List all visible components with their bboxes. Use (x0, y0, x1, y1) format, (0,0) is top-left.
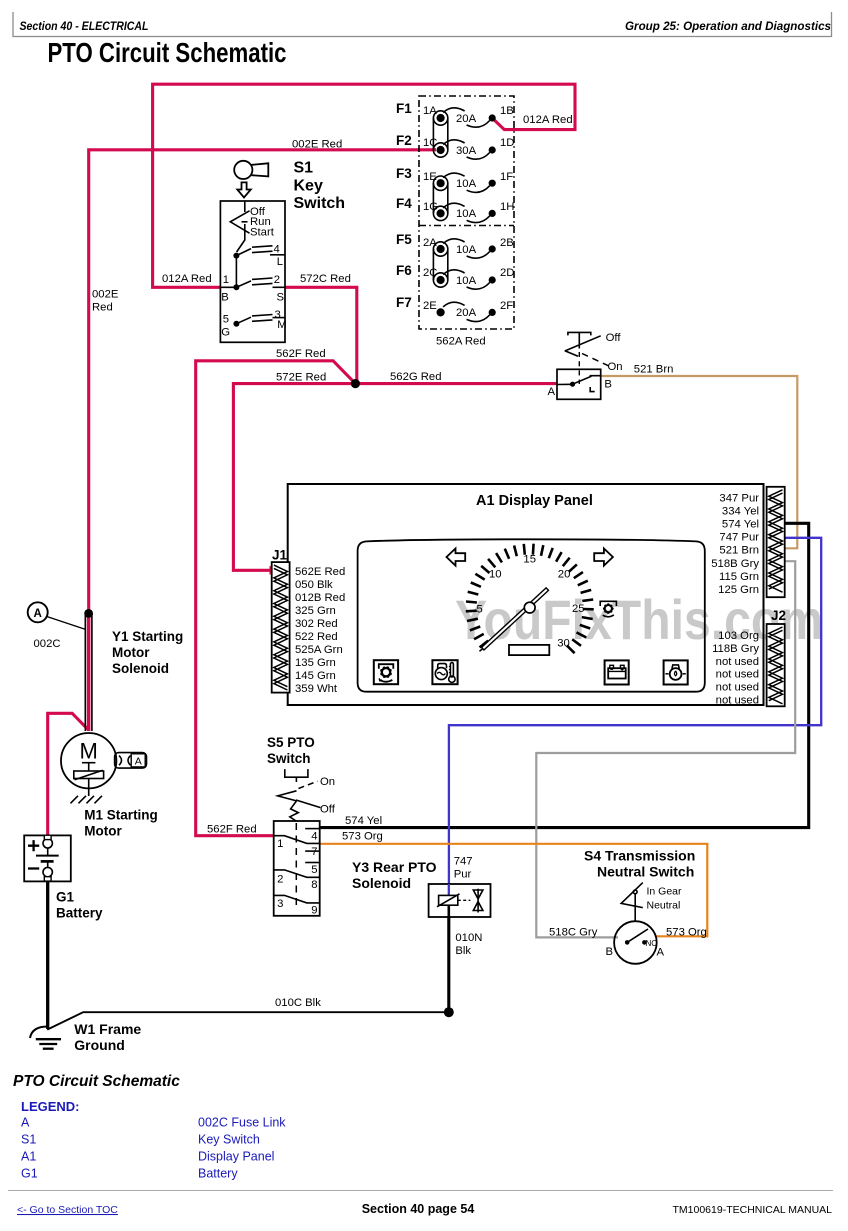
svg-text:1: 1 (223, 274, 229, 286)
svg-text:Off: Off (320, 804, 336, 816)
svg-text:1F: 1F (500, 171, 513, 183)
svg-text:Red: Red (92, 302, 113, 314)
svg-text:115 Grn: 115 Grn (719, 571, 759, 583)
svg-text:518B Gry: 518B Gry (711, 558, 759, 570)
svg-text:M: M (80, 739, 98, 764)
svg-text:747 Pur: 747 Pur (719, 532, 759, 544)
svg-text:Battery: Battery (56, 906, 103, 921)
svg-text:F2: F2 (396, 133, 412, 148)
svg-text:Battery: Battery (198, 1167, 238, 1181)
svg-text:Y3 Rear PTO: Y3 Rear PTO (352, 859, 437, 875)
svg-text:<- Go to Section TOC: <- Go to Section TOC (17, 1204, 118, 1216)
svg-text:562A Red: 562A Red (436, 336, 486, 348)
svg-text:522 Red: 522 Red (295, 631, 338, 643)
svg-text:NC: NC (646, 939, 658, 948)
svg-text:562E Red: 562E Red (295, 566, 345, 578)
svg-text:574 Yel: 574 Yel (345, 815, 382, 827)
svg-text:010C Blk: 010C Blk (275, 997, 321, 1009)
svg-text:PTO Circuit Schematic: PTO Circuit Schematic (48, 37, 287, 68)
svg-text:002C Fuse Link: 002C Fuse Link (198, 1116, 286, 1130)
svg-text:F6: F6 (396, 263, 412, 278)
svg-text:359 Wht: 359 Wht (295, 683, 338, 695)
svg-text:A: A (548, 386, 556, 398)
svg-text:S5 PTO: S5 PTO (267, 735, 315, 750)
svg-text:118B Gry: 118B Gry (712, 643, 759, 655)
svg-text:Solenoid: Solenoid (352, 875, 411, 891)
svg-text:J2: J2 (771, 608, 786, 623)
svg-text:B: B (606, 946, 614, 958)
svg-text:not used: not used (716, 669, 759, 681)
svg-text:Section 40 - ELECTRICAL: Section 40 - ELECTRICAL (20, 19, 149, 33)
svg-text:Off: Off (606, 332, 622, 344)
svg-text:A: A (34, 608, 42, 620)
svg-text:572E Red: 572E Red (276, 372, 326, 384)
svg-text:G1: G1 (21, 1167, 38, 1181)
svg-text:20A: 20A (456, 113, 477, 125)
svg-text:G: G (221, 326, 230, 338)
svg-text:10A: 10A (456, 178, 477, 190)
svg-text:521 Brn: 521 Brn (719, 545, 759, 557)
svg-text:Solenoid: Solenoid (112, 661, 169, 676)
svg-text:135 Grn: 135 Grn (295, 657, 336, 669)
svg-text:PTO Circuit Schematic: PTO Circuit Schematic (13, 1073, 180, 1090)
svg-text:Pur: Pur (454, 869, 472, 881)
svg-text:In Gear: In Gear (647, 886, 683, 898)
svg-text:B: B (604, 378, 612, 390)
svg-text:Switch: Switch (267, 751, 311, 766)
svg-text:S: S (277, 291, 285, 303)
svg-text:002E: 002E (92, 289, 119, 301)
svg-text:Switch: Switch (294, 195, 346, 212)
svg-text:M1 Starting: M1 Starting (84, 808, 158, 823)
svg-text:M: M (277, 319, 286, 331)
svg-text:4: 4 (274, 244, 280, 256)
svg-text:F5: F5 (396, 232, 412, 247)
svg-text:A: A (657, 947, 665, 959)
svg-text:2B: 2B (500, 237, 514, 249)
svg-text:10A: 10A (456, 244, 477, 256)
svg-text:1E: 1E (423, 171, 437, 183)
svg-text:1D: 1D (500, 137, 514, 149)
svg-text:5: 5 (477, 604, 483, 616)
svg-text:562G Red: 562G Red (390, 371, 442, 383)
svg-text:9: 9 (311, 905, 317, 917)
svg-text:002E Red: 002E Red (292, 139, 342, 151)
svg-text:L: L (277, 256, 283, 268)
svg-text:2C: 2C (423, 267, 437, 279)
svg-text:3: 3 (277, 898, 283, 910)
svg-text:10: 10 (489, 569, 502, 581)
svg-text:2F: 2F (500, 300, 513, 312)
svg-text:145 Grn: 145 Grn (295, 670, 336, 682)
svg-text:F4: F4 (396, 196, 412, 211)
svg-text:B: B (221, 291, 229, 303)
svg-text:573 Org: 573 Org (666, 927, 707, 939)
svg-text:562F Red: 562F Red (276, 348, 326, 360)
svg-text:012A Red: 012A Red (162, 273, 212, 285)
svg-text:20A: 20A (456, 307, 477, 319)
svg-text:1: 1 (277, 838, 283, 850)
svg-text:050 Blk: 050 Blk (295, 579, 333, 591)
svg-text:573 Org: 573 Org (342, 831, 383, 843)
svg-text:574 Yel: 574 Yel (722, 519, 759, 531)
svg-text:747: 747 (454, 856, 473, 868)
svg-text:Display Panel: Display Panel (198, 1150, 274, 1164)
svg-text:Neutral Switch: Neutral Switch (597, 864, 694, 880)
svg-text:15: 15 (523, 554, 536, 566)
svg-text:012B Red: 012B Red (295, 592, 345, 604)
svg-text:LEGEND:: LEGEND: (21, 1099, 80, 1114)
svg-text:Blk: Blk (455, 945, 471, 957)
svg-text:525A Grn: 525A Grn (295, 644, 343, 656)
svg-text:325 Grn: 325 Grn (295, 605, 336, 617)
svg-text:1C: 1C (423, 137, 437, 149)
svg-text:Motor: Motor (84, 824, 122, 839)
svg-text:Group 25: Operation and Diagno: Group 25: Operation and Diagnostics (625, 19, 831, 33)
svg-text:A: A (21, 1116, 30, 1130)
svg-text:On: On (608, 361, 623, 373)
svg-text:002C: 002C (34, 638, 61, 650)
svg-text:7: 7 (311, 846, 317, 858)
svg-text:4: 4 (311, 831, 317, 843)
svg-text:1B: 1B (500, 105, 514, 117)
svg-text:103 Org: 103 Org (718, 630, 759, 642)
svg-text:2A: 2A (423, 237, 437, 249)
svg-text:Section 40 page 54: Section 40 page 54 (362, 1202, 475, 1216)
svg-text:1H: 1H (500, 201, 514, 213)
svg-text:5: 5 (311, 864, 317, 876)
svg-text:F3: F3 (396, 166, 412, 181)
svg-text:10A: 10A (456, 208, 477, 220)
svg-text:F1: F1 (396, 101, 412, 116)
svg-text:Neutral: Neutral (647, 900, 681, 912)
svg-text:334 Yel: 334 Yel (722, 505, 759, 517)
svg-text:8: 8 (311, 879, 317, 891)
svg-text:Start: Start (250, 227, 275, 239)
svg-text:010N: 010N (455, 932, 482, 944)
svg-text:562F Red: 562F Red (207, 824, 257, 836)
svg-text:A1 Display Panel: A1 Display Panel (476, 493, 593, 509)
svg-text:F7: F7 (396, 295, 412, 310)
svg-text:not used: not used (716, 656, 759, 668)
svg-text:Key: Key (294, 178, 323, 195)
svg-text:347 Pur: 347 Pur (719, 492, 759, 504)
svg-text:A1: A1 (21, 1150, 36, 1164)
svg-text:A: A (135, 756, 142, 768)
svg-text:518C Gry: 518C Gry (549, 927, 598, 939)
svg-text:not used: not used (716, 695, 759, 707)
svg-text:2D: 2D (500, 267, 514, 279)
svg-text:J1: J1 (272, 548, 288, 563)
svg-text:2: 2 (274, 274, 280, 286)
svg-text:2E: 2E (423, 300, 437, 312)
svg-text:20: 20 (558, 569, 571, 581)
svg-text:Ground: Ground (74, 1037, 125, 1053)
svg-text:30A: 30A (456, 145, 477, 157)
svg-text:S1: S1 (294, 160, 314, 177)
svg-text:G1: G1 (56, 890, 75, 905)
svg-text:10A: 10A (456, 275, 477, 287)
svg-text:Key Switch: Key Switch (198, 1133, 260, 1147)
svg-text:On: On (320, 776, 335, 788)
svg-text:2: 2 (277, 874, 283, 886)
svg-text:Motor: Motor (112, 645, 150, 660)
svg-text:572C Red: 572C Red (300, 273, 351, 285)
svg-text:5: 5 (223, 314, 229, 326)
svg-text:521 Brn: 521 Brn (634, 364, 674, 376)
svg-text:30: 30 (557, 638, 570, 650)
svg-text:S1: S1 (21, 1133, 36, 1147)
svg-text:Y1 Starting: Y1 Starting (112, 629, 183, 644)
svg-text:S4 Transmission: S4 Transmission (584, 848, 695, 864)
svg-text:not used: not used (716, 682, 759, 694)
svg-text:TM100619-TECHNICAL MANUAL: TM100619-TECHNICAL MANUAL (673, 1204, 833, 1216)
svg-text:W1 Frame: W1 Frame (74, 1021, 141, 1037)
svg-text:25: 25 (572, 603, 585, 615)
svg-text:125 Grn: 125 Grn (718, 584, 759, 596)
svg-text:1A: 1A (423, 105, 437, 117)
svg-text:012A Red: 012A Red (523, 114, 573, 126)
svg-text:302 Red: 302 Red (295, 618, 338, 630)
